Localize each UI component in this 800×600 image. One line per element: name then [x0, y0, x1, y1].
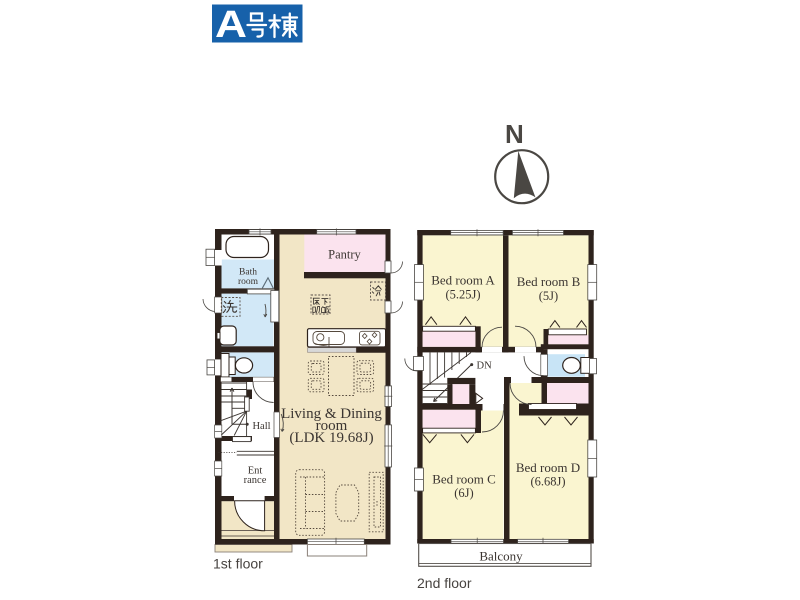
svg-text:Bath: Bath: [239, 268, 257, 278]
svg-text:(6.68J): (6.68J): [530, 475, 565, 489]
svg-text:rance: rance: [244, 475, 267, 486]
svg-text:Bed room C: Bed room C: [432, 472, 496, 487]
svg-text:DN: DN: [477, 361, 493, 372]
svg-text:Balcony: Balcony: [479, 549, 523, 564]
svg-text:Hall: Hall: [252, 421, 270, 432]
svg-text:(5J): (5J): [539, 289, 558, 303]
svg-text:(LDK 19.68J): (LDK 19.68J): [289, 430, 373, 446]
svg-text:A: A: [215, 4, 247, 46]
svg-text:2nd floor: 2nd floor: [417, 575, 472, 591]
svg-text:N: N: [505, 119, 524, 149]
svg-text:(6J): (6J): [454, 486, 473, 500]
svg-text:Bed room B: Bed room B: [517, 274, 581, 289]
svg-text:1st floor: 1st floor: [213, 556, 263, 572]
svg-text:Bed room A: Bed room A: [431, 273, 495, 288]
svg-text:(5.25J): (5.25J): [445, 288, 480, 302]
svg-text:Pantry: Pantry: [328, 248, 361, 262]
svg-text:room: room: [238, 277, 259, 287]
svg-text:Bed room D: Bed room D: [516, 460, 580, 475]
